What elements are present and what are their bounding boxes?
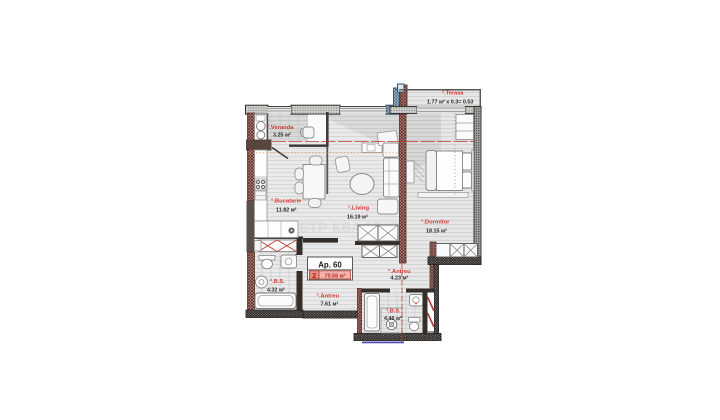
svg-text:4.46 м²: 4.46 м² [384, 316, 402, 322]
svg-text:°.Dormitor: °.Dormitor [421, 220, 450, 226]
svg-text:1.77 м² x 0.3= 0.53: 1.77 м² x 0.3= 0.53 [427, 100, 473, 106]
svg-text:°.B.S.: °.B.S. [270, 279, 285, 285]
svg-text:11.82 м²: 11.82 м² [276, 208, 297, 214]
svg-text:2: 2 [312, 273, 316, 280]
svg-text:7.61 м²: 7.61 м² [321, 302, 339, 308]
svg-text:Ap. 60: Ap. 60 [318, 261, 342, 270]
svg-text:4.32 м²: 4.32 м² [267, 288, 285, 294]
svg-text:3.25 м²: 3.25 м² [273, 133, 291, 139]
svg-text:°.Living: °.Living [348, 206, 369, 212]
svg-text:°.B.S.: °.B.S. [386, 309, 401, 315]
svg-text:18.15 м²: 18.15 м² [426, 229, 447, 235]
svg-text:°.Veranda: °.Veranda [267, 125, 294, 131]
svg-text:16.19 м²: 16.19 м² [347, 215, 368, 221]
svg-text:70.56 м²: 70.56 м² [324, 273, 345, 280]
svg-text:°.Antreu: °.Antreu [388, 269, 411, 275]
svg-text:°.Terasa: °.Terasa [442, 91, 464, 97]
svg-text:°.Bucatarie: °.Bucatarie [271, 199, 302, 205]
svg-text:4.23 м²: 4.23 м² [391, 276, 409, 282]
svg-text:°.Antreu: °.Antreu [317, 294, 340, 300]
